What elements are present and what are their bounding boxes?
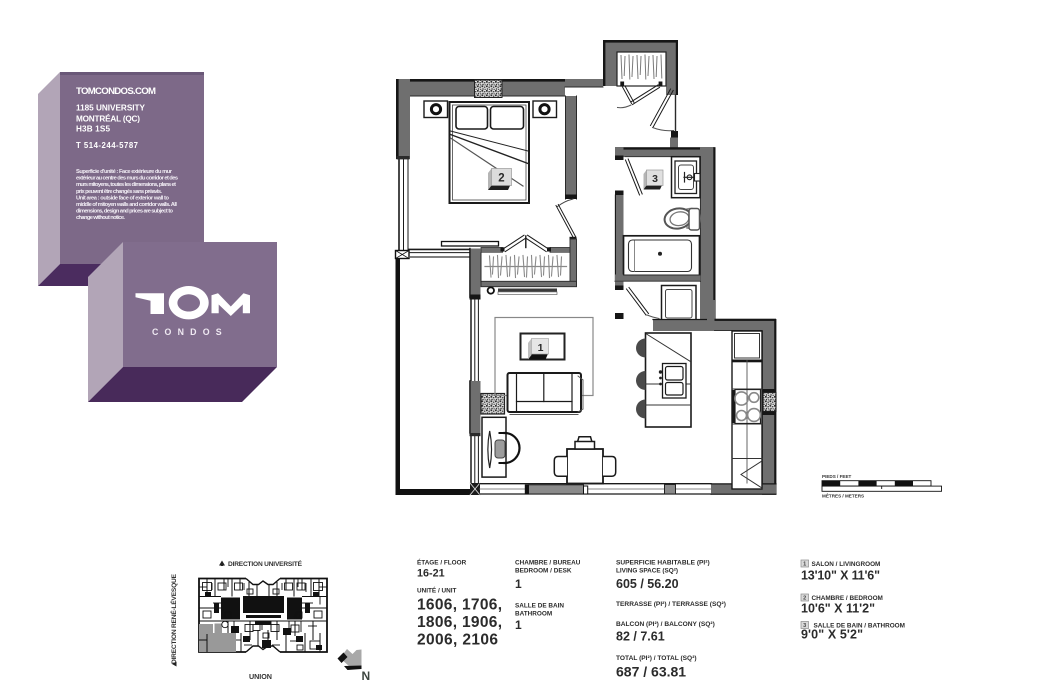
svg-text:N: N xyxy=(362,669,371,683)
svg-text:1185 UNIVERSITY: 1185 UNIVERSITY xyxy=(76,104,146,113)
svg-text:13'10" X 11'6": 13'10" X 11'6" xyxy=(801,569,880,583)
svg-text:TOMCONDOS.COM: TOMCONDOS.COM xyxy=(76,86,156,97)
svg-text:BALCON (PI²) / BALCONY (SQ²): BALCON (PI²) / BALCONY (SQ²) xyxy=(616,621,715,628)
svg-text:PIEDS / FEET: PIEDS / FEET xyxy=(822,474,852,479)
svg-text:MÈTRES / METERS: MÈTRES / METERS xyxy=(822,492,864,499)
svg-text:Superficie d'unité : Face exté: Superficie d'unité : Face extérieure du … xyxy=(76,169,173,175)
svg-text:CONDOS: CONDOS xyxy=(152,327,228,337)
svg-text:9'0" X 5'2": 9'0" X 5'2" xyxy=(801,628,863,642)
svg-text:T 514-244-5787: T 514-244-5787 xyxy=(76,141,138,150)
svg-text:UNITÉ / UNIT: UNITÉ / UNIT xyxy=(417,586,457,595)
svg-text:687 / 63.81: 687 / 63.81 xyxy=(616,664,686,680)
svg-text:LIVING SPACE (SQ²): LIVING SPACE (SQ²) xyxy=(616,568,678,575)
svg-text:CHAMBRE / BUREAU: CHAMBRE / BUREAU xyxy=(515,560,581,567)
svg-text:1: 1 xyxy=(515,618,522,632)
svg-text:1: 1 xyxy=(515,577,522,591)
svg-text:DIRECTION UNIVERSITÉ: DIRECTION UNIVERSITÉ xyxy=(228,559,303,568)
svg-text:middle of mitoyen walls and co: middle of mitoyen walls and corridor wal… xyxy=(76,202,177,208)
svg-text:Unit area : outside face of ex: Unit area : outside face of exterior wal… xyxy=(76,195,170,201)
svg-text:BEDROOM / DESK: BEDROOM / DESK xyxy=(515,568,572,575)
svg-text:SALON / LIVINGROOM: SALON / LIVINGROOM xyxy=(812,561,881,568)
svg-text:extérieur au centre des murs d: extérieur au centre des murs du corridor… xyxy=(76,176,178,182)
svg-text:TERRASSE (PI²) / TERRASSE (SQ²: TERRASSE (PI²) / TERRASSE (SQ²) xyxy=(616,601,726,608)
svg-text:1: 1 xyxy=(538,342,544,354)
svg-text:1806, 1906,: 1806, 1906, xyxy=(417,614,502,631)
svg-text:16-21: 16-21 xyxy=(417,568,445,580)
svg-text:H3B 1S5: H3B 1S5 xyxy=(76,125,110,134)
svg-text:BATHROOM: BATHROOM xyxy=(515,611,552,618)
svg-text:1: 1 xyxy=(803,562,806,568)
svg-text:SUPERFICIE HABITABLE (PI²): SUPERFICIE HABITABLE (PI²) xyxy=(616,560,710,567)
svg-text:murs mitoyens, toutes les dime: murs mitoyens, toutes les dimensions, pl… xyxy=(76,182,176,188)
svg-text:TOTAL (PI²) / TOTAL (SQ²): TOTAL (PI²) / TOTAL (SQ²) xyxy=(616,655,697,662)
svg-text:MONTRÉAL (QC): MONTRÉAL (QC) xyxy=(76,114,140,124)
svg-text:dimensions, design and prices: dimensions, design and prices are subjec… xyxy=(76,209,174,215)
svg-text:2: 2 xyxy=(498,173,504,185)
svg-text:1606, 1706,: 1606, 1706, xyxy=(417,597,502,614)
svg-text:3: 3 xyxy=(652,173,658,185)
svg-text:10'6" X 11'2": 10'6" X 11'2" xyxy=(801,602,875,616)
svg-text:605 / 56.20: 605 / 56.20 xyxy=(616,577,679,591)
svg-text:prix peuvent être changés sans: prix peuvent être changés sans préavis. xyxy=(76,189,162,195)
svg-text:82 / 7.61: 82 / 7.61 xyxy=(616,630,665,644)
svg-text:ÉTAGE / FLOOR: ÉTAGE / FLOOR xyxy=(417,558,467,567)
svg-text:2006, 2106: 2006, 2106 xyxy=(417,632,498,649)
svg-text:SALLE DE BAIN: SALLE DE BAIN xyxy=(515,603,564,610)
svg-text:change without notice.: change without notice. xyxy=(76,215,125,221)
svg-text:DIRECTION RENÉ-LÉVESQUE: DIRECTION RENÉ-LÉVESQUE xyxy=(169,573,178,664)
svg-text:UNION: UNION xyxy=(249,672,272,681)
